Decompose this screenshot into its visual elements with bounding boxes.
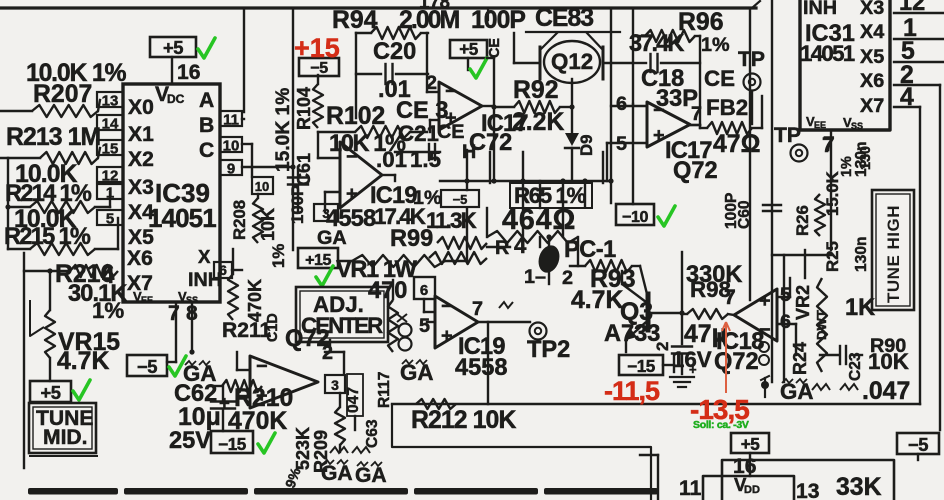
svg-text:X3: X3	[860, 0, 884, 19]
svg-text:R212 10K: R212 10K	[411, 407, 516, 434]
svg-text:C21: C21	[398, 121, 439, 146]
svg-text:523K: 523K	[293, 427, 313, 470]
svg-text:7: 7	[472, 298, 483, 320]
svg-text:2.00M: 2.00M	[399, 7, 459, 34]
svg-text:14051: 14051	[148, 203, 216, 233]
svg-text:R90: R90	[870, 335, 906, 357]
svg-text:.047: .047	[862, 378, 910, 405]
svg-text:1–: 1–	[524, 266, 546, 288]
svg-text:MID.: MID.	[43, 426, 88, 449]
svg-text:7: 7	[724, 286, 736, 309]
svg-text:−: −	[441, 296, 453, 318]
svg-text:33K: 33K	[836, 474, 882, 500]
svg-text:X: X	[198, 246, 211, 267]
svg-text:5: 5	[106, 211, 114, 228]
svg-text:1%: 1%	[269, 244, 288, 268]
svg-text:CE83: CE83	[535, 5, 593, 32]
svg-text:X3: X3	[128, 176, 154, 199]
svg-text:R117: R117	[376, 372, 393, 408]
svg-text:2: 2	[562, 267, 573, 289]
svg-text:7: 7	[822, 134, 834, 157]
svg-text:GA: GA	[400, 360, 433, 385]
svg-text:R99: R99	[390, 226, 433, 252]
svg-text:15: 15	[102, 141, 119, 158]
svg-text:130: 130	[858, 146, 874, 170]
svg-text:CE: CE	[704, 66, 735, 91]
svg-text:11.3K: 11.3K	[426, 208, 477, 233]
svg-text:16V: 16V	[672, 347, 712, 372]
svg-text:R104: R104	[294, 87, 314, 130]
svg-text:14051: 14051	[800, 41, 855, 66]
svg-text:−15: −15	[627, 356, 656, 376]
svg-text:−5: −5	[908, 434, 928, 455]
svg-text:GA: GA	[355, 464, 387, 487]
svg-text:−5: −5	[453, 192, 468, 207]
svg-text:7: 7	[168, 302, 180, 325]
svg-text:.01: .01	[376, 147, 407, 172]
svg-text:C60: C60	[736, 200, 753, 229]
svg-text:D9: D9	[577, 135, 596, 156]
svg-text:4558: 4558	[326, 206, 376, 232]
svg-text:9: 9	[227, 161, 235, 178]
svg-text:SS: SS	[851, 121, 863, 131]
svg-text:DC: DC	[167, 92, 185, 106]
svg-text:4.7K: 4.7K	[57, 348, 109, 375]
svg-text:+5: +5	[741, 434, 761, 454]
svg-text:R92: R92	[513, 77, 559, 104]
svg-text:11: 11	[679, 477, 702, 500]
svg-text:INH: INH	[803, 0, 837, 19]
svg-text:8: 8	[186, 302, 198, 325]
svg-text:047: 047	[345, 387, 362, 413]
svg-text:+5: +5	[163, 37, 183, 58]
svg-text:Soll: ca. -3V: Soll: ca. -3V	[693, 419, 749, 431]
svg-text:2.2K: 2.2K	[512, 109, 564, 136]
svg-text:VR2: VR2	[793, 285, 813, 320]
svg-text:Q72: Q72	[673, 158, 718, 184]
svg-text:X6: X6	[860, 70, 884, 92]
svg-text:C20: C20	[373, 39, 416, 65]
svg-text:10: 10	[223, 138, 240, 155]
svg-text:−10: −10	[622, 208, 648, 226]
svg-text:X0: X0	[128, 96, 154, 119]
svg-text:1%: 1%	[701, 34, 730, 56]
svg-text:EE: EE	[814, 120, 826, 130]
svg-text:C23: C23	[847, 352, 864, 381]
svg-text:6: 6	[219, 262, 227, 278]
svg-text:130n: 130n	[853, 236, 870, 272]
svg-text:13: 13	[102, 93, 119, 110]
svg-text:2: 2	[653, 342, 672, 351]
svg-text:1.5: 1.5	[410, 147, 441, 172]
svg-text:+: +	[759, 290, 771, 312]
svg-text:X7: X7	[860, 95, 884, 117]
svg-text:−: −	[653, 99, 665, 121]
svg-text:5: 5	[419, 315, 430, 337]
svg-text:4558: 4558	[455, 355, 508, 381]
svg-text:1K: 1K	[845, 295, 875, 321]
svg-text:−: −	[445, 80, 457, 102]
svg-text:R94: R94	[332, 7, 378, 34]
svg-text:R25: R25	[823, 241, 842, 272]
svg-text:3: 3	[331, 377, 339, 393]
svg-text:+15: +15	[305, 251, 331, 269]
svg-text:R26: R26	[793, 205, 812, 236]
svg-text:14: 14	[102, 116, 119, 133]
svg-text:EE: EE	[141, 295, 153, 305]
svg-text:100P: 100P	[471, 7, 525, 34]
svg-text:+: +	[653, 125, 665, 147]
svg-text:X1: X1	[128, 123, 154, 146]
svg-text:TP: TP	[774, 124, 801, 147]
svg-text:C1D: C1D	[265, 313, 281, 342]
svg-text:CE: CE	[487, 38, 503, 58]
svg-text:100P: 100P	[288, 185, 307, 224]
svg-text:16: 16	[177, 61, 200, 84]
svg-text:-11,5: -11,5	[604, 376, 660, 406]
svg-text:15.0K 1%: 15.0K 1%	[273, 88, 294, 172]
svg-text:10K: 10K	[258, 208, 278, 241]
svg-text:R208: R208	[230, 200, 249, 240]
svg-text:6: 6	[420, 282, 428, 299]
svg-text:Q72: Q72	[714, 349, 759, 375]
svg-text:C63: C63	[364, 419, 381, 448]
svg-text:X5: X5	[860, 46, 884, 68]
svg-text:1%: 1%	[92, 298, 124, 323]
svg-text:X2: X2	[128, 148, 154, 171]
svg-text:−15: −15	[218, 434, 247, 454]
svg-text:DD: DD	[744, 484, 760, 496]
svg-text:−5: −5	[137, 356, 157, 377]
svg-text:10: 10	[255, 179, 269, 194]
svg-text:A: A	[199, 89, 214, 112]
svg-text:−: −	[256, 356, 268, 378]
svg-text:R213 1M: R213 1M	[6, 124, 100, 151]
svg-text:4: 4	[514, 233, 527, 258]
svg-text:13: 13	[796, 480, 819, 500]
svg-text:4.7K: 4.7K	[571, 287, 623, 314]
svg-text:+5: +5	[41, 382, 61, 403]
svg-text:C: C	[199, 139, 214, 162]
svg-text:10μ: 10μ	[178, 404, 221, 431]
svg-text:11: 11	[223, 112, 239, 129]
svg-text:TP: TP	[738, 48, 765, 71]
svg-text:X4: X4	[860, 21, 884, 43]
svg-text:25V: 25V	[169, 428, 211, 454]
svg-text:470K: 470K	[245, 279, 265, 322]
svg-text:X6: X6	[127, 247, 153, 270]
svg-text:B: B	[199, 114, 214, 137]
svg-text:Q12: Q12	[551, 49, 593, 74]
svg-text:1: 1	[106, 185, 114, 202]
svg-text:6: 6	[780, 311, 791, 333]
svg-text:FB2: FB2	[706, 95, 748, 120]
svg-text:R102: R102	[326, 103, 385, 130]
svg-text:+: +	[346, 183, 358, 205]
svg-text:+5: +5	[459, 39, 479, 59]
svg-text:12: 12	[102, 168, 119, 185]
svg-text:47Ω: 47Ω	[713, 131, 760, 158]
svg-text:+: +	[441, 325, 453, 347]
svg-text:+: +	[445, 107, 457, 129]
svg-text:TP2: TP2	[527, 337, 570, 363]
svg-text:TUNE HIGH: TUNE HIGH	[884, 205, 903, 303]
svg-text:−: −	[346, 146, 358, 168]
svg-text:GA: GA	[321, 462, 353, 485]
svg-text:INH: INH	[188, 269, 222, 291]
svg-text:+15: +15	[294, 33, 340, 63]
svg-text:R24: R24	[790, 342, 810, 375]
svg-text:6: 6	[616, 93, 627, 115]
